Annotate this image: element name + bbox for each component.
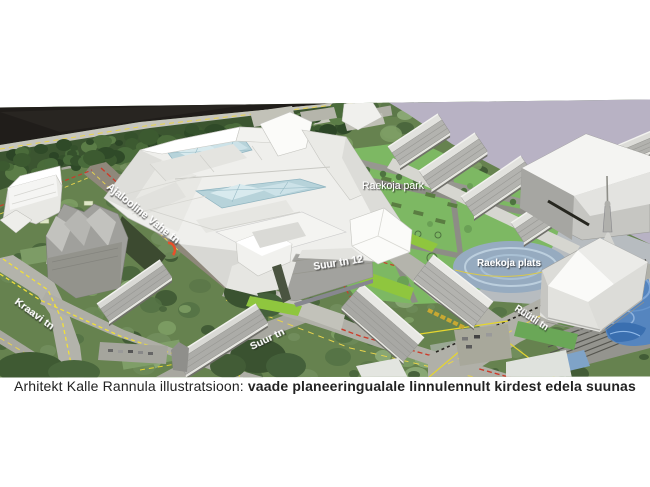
svg-text:Raekoja plats: Raekoja plats [477,257,541,269]
svg-text:Raekoja park: Raekoja park [362,180,424,192]
